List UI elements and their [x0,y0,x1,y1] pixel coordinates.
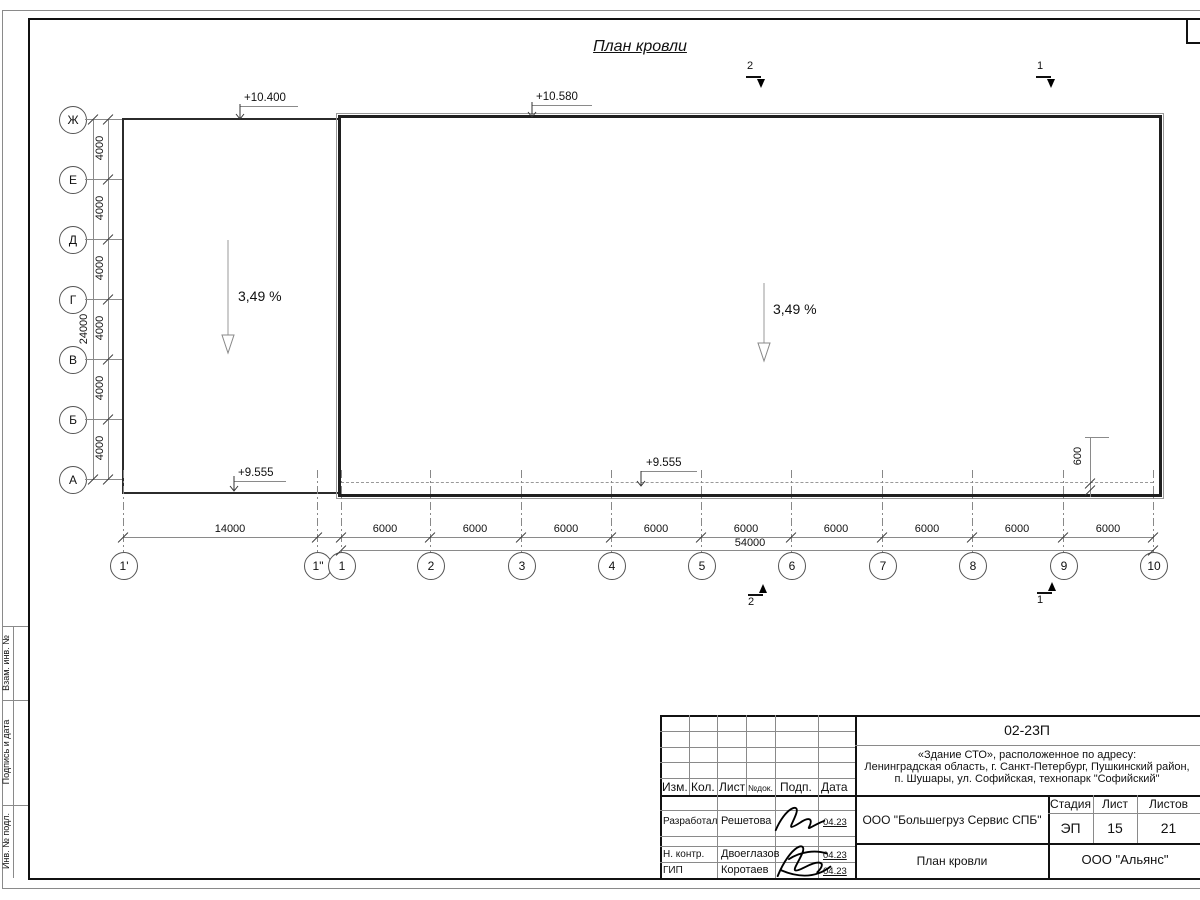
frame-strip-label: Подпись и дата [1,717,15,787]
dim-label: 6000 [992,523,1042,535]
paper-edge-top [2,10,1200,11]
elevation-value: +10.580 [536,91,578,103]
dim-label: 6000 [1083,523,1133,535]
axis-label: 9 [1061,559,1068,573]
project-address-line: п. Шушары, ул. Софийская, технопарк "Соф… [857,773,1197,785]
sheet-label: Лист [1093,797,1137,811]
slope-arrow-icon [220,240,236,355]
axis-circle-number: 10 [1140,552,1168,580]
elevation-leader [240,106,298,107]
titleblock-line [855,745,1200,746]
signer-name: Двоеглазов [721,848,779,860]
paper-edge-bottom [2,888,1200,889]
axis-circle-number: 8 [959,552,987,580]
axis-circle-number: 1 [328,552,356,580]
titleblock-line [660,762,855,763]
titleblock-line [660,731,855,732]
axis-line [611,470,612,552]
axis-circle-letter: Б [59,406,87,434]
axis-label: Е [69,173,77,187]
axis-label: 6 [789,559,796,573]
dim-label: 4000 [94,306,106,350]
dim-label: 4000 [94,246,106,290]
signer-name: Решетова [721,815,771,827]
rev-col-header: Лист [719,780,745,794]
sheets-value: 21 [1137,820,1200,836]
signature-scribble [772,838,838,884]
frame-strip-label: Взам. инв. № [1,628,15,698]
axis-circle-number: 1' [110,552,138,580]
axis-circle-number: 6 [778,552,806,580]
titleblock-border [855,843,1200,845]
page-title: План кровли [555,38,725,56]
frame-strip-line [2,626,28,627]
axis-label: 3 [519,559,526,573]
titleblock-line [660,747,855,748]
roof-plan-sheet: Взам. инв. № Подпись и дата Инв. № подл.… [0,0,1200,900]
elevation-leader [532,105,592,106]
dimension-line [123,537,1153,538]
section-mark-line [746,76,761,78]
elevation-leader [234,481,286,482]
dim-label: 6000 [541,523,591,535]
axis-circle-letter: Ж [59,106,87,134]
axis-label: 1" [313,559,324,573]
company-name: ООО "Альянс" [1050,852,1200,867]
stage-label: Стадия [1048,797,1093,811]
dim-label-total: 54000 [715,537,785,549]
section-arrow-icon [1047,79,1055,88]
signer-name: Коротаев [721,864,769,876]
dim-label: 4000 [94,426,106,470]
axis-line [430,470,431,552]
dim-label: 14000 [195,523,265,535]
rev-col-header: Кол. [691,780,715,794]
elevation-arrow-icon [234,104,246,120]
roof-overhang-dashed-line [341,482,1153,483]
elevation-arrow-icon [228,476,240,492]
axis-label: Ж [67,113,78,127]
axis-circle-number: 5 [688,552,716,580]
axis-line [882,470,883,552]
axis-line [972,470,973,552]
rev-col-header: Изм. [662,780,688,794]
axis-line [85,179,122,180]
dim-label: 6000 [450,523,500,535]
section-mark-number: 1 [1037,60,1043,72]
axis-line [123,470,124,552]
slope-arrow-icon [756,283,772,363]
axis-line [521,470,522,552]
section-arrow-icon [757,79,765,88]
axis-label: Б [69,413,77,427]
dim-label: 6000 [721,523,771,535]
axis-line [317,470,318,552]
axis-label: Г [70,293,77,307]
axis-line [85,359,122,360]
dim-label: 6000 [902,523,952,535]
rev-col-header: №док. [748,783,773,793]
dim-label-total-vertical: 24000 [78,304,90,354]
axis-line [791,470,792,552]
axis-label: 8 [970,559,977,573]
axis-line [85,299,122,300]
axis-circle-letter: Д [59,226,87,254]
axis-label: 4 [609,559,616,573]
axis-line [701,470,702,552]
signer-role: ГИП [663,865,683,876]
axis-circle-number: 3 [508,552,536,580]
axis-label: 10 [1147,559,1160,573]
elevation-value: +9.555 [646,457,682,469]
frame-strip-label: Инв. № подл. [1,806,15,876]
elevation-arrow-icon [635,471,647,487]
frame-strip-line [2,700,28,701]
axis-circle-number: 7 [869,552,897,580]
section-mark-number: 2 [747,60,753,72]
signature-scribble [772,800,828,838]
dim-label: 6000 [360,523,410,535]
axis-label: 2 [428,559,435,573]
titleblock-line [1048,813,1200,814]
slope-value: 3,49 % [773,301,817,317]
frame-corner-box [1186,18,1200,44]
sheet-value: 15 [1093,820,1137,836]
axis-label: Д [69,233,77,247]
axis-line [1153,470,1154,552]
axis-label: 5 [699,559,706,573]
axis-line [85,239,122,240]
dim-label: 6000 [631,523,681,535]
drawing-name: План кровли [857,854,1047,868]
dimension-line [341,550,1153,551]
axis-circle-number: 2 [417,552,445,580]
client-name: ООО "Большегруз Сервис СПБ" [857,813,1047,827]
titleblock-line [689,715,690,795]
dimension-line [1085,437,1109,438]
dim-label: 4000 [94,366,106,410]
stage-value: ЭП [1048,820,1093,836]
dim-label: 6000 [811,523,861,535]
elevation-value: +10.400 [244,92,286,104]
signer-role: Разработал [663,816,717,827]
elevation-leader [641,471,697,472]
sheets-label: Листов [1137,797,1200,811]
section-arrow-icon [759,584,767,593]
rev-col-header: Подп. [780,780,812,794]
dim-label: 4000 [94,186,106,230]
section-arrow-icon [1048,582,1056,591]
axis-line [341,470,342,552]
signer-role: Н. контр. [663,849,704,860]
axis-circle-number: 9 [1050,552,1078,580]
titleblock-line [660,778,855,779]
section-mark-number: 1 [1037,594,1043,606]
dim-label: 4000 [94,126,106,170]
section-mark-line [1036,76,1051,78]
axis-label: А [69,473,77,487]
axis-label: 1 [339,559,346,573]
titleblock-line [717,715,718,878]
elevation-value: +9.555 [238,467,274,479]
section-mark-line [748,594,763,596]
axis-circle-letter: Е [59,166,87,194]
elevation-arrow-icon [526,102,538,118]
titleblock-line [746,715,747,795]
dim-label-overhang: 600 [1072,438,1084,474]
axis-line [85,419,122,420]
titleblock-border [660,715,1200,717]
axis-circle-number: 4 [598,552,626,580]
axis-label: В [69,353,77,367]
building-main-block [338,115,1162,497]
rev-col-header: Дата [821,780,848,794]
slope-value: 3,49 % [238,288,282,304]
doc-number: 02-23П [857,722,1197,738]
project-address-line: «Здание СТО», расположенное по адресу: [857,749,1197,761]
axis-circle-letter: А [59,466,87,494]
axis-label: 1' [120,559,129,573]
axis-label: 7 [880,559,887,573]
project-address-line: Ленинградская область, г. Санкт-Петербур… [857,761,1197,773]
axis-line [1063,470,1064,552]
section-mark-number: 2 [748,596,754,608]
section-mark-line [1037,592,1052,594]
